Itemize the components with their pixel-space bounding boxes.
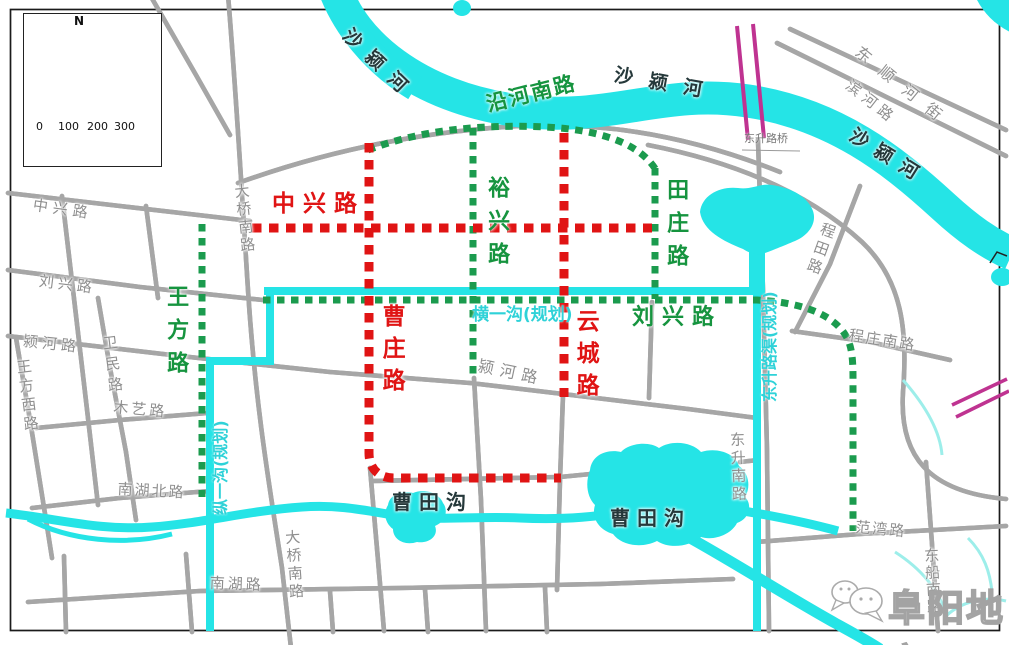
scale-tick-200: 200	[87, 120, 108, 133]
label-liuxing-road-planned: 刘兴路	[632, 306, 722, 329]
label-wangfang-road: 王方路	[164, 285, 187, 384]
label-tianzhuang-road: 田庄路	[664, 178, 687, 277]
label-dongsheng-canal: 东升路渠(规划)	[762, 291, 779, 402]
label-yuncheng-road: 云城路	[573, 309, 597, 405]
water-patch-top	[453, 0, 471, 16]
label-dongsheng-bridge: 东升路桥	[744, 133, 788, 145]
scale-tick-100: 100	[58, 120, 79, 133]
label-nanhu-road: 南湖路	[209, 576, 264, 594]
label-caotiangou-stream-2: 曹田沟	[610, 508, 691, 529]
north-label: N	[74, 14, 84, 28]
pond-caotiangou-big	[587, 443, 749, 546]
map-canvas: N 0 100 200 300 沙颍河 沙颍河 沙颍河 曹田沟 曹田沟 沿河南路…	[0, 0, 1009, 645]
label-yuxing-road: 裕兴路	[485, 176, 508, 275]
watermark-text: 阜阳地市	[888, 578, 1009, 645]
legend-box	[23, 13, 162, 167]
label-caozhuang-road: 曹庄路	[379, 304, 403, 400]
scale-tick-0: 0	[36, 120, 43, 133]
label-zhongxing-road-planned: 中兴路	[272, 192, 365, 216]
label-hengyigou-channel: 横一沟(规划)	[472, 307, 573, 325]
label-nanhubei-road: 南湖北路	[117, 482, 186, 501]
scale-tick-300: 300	[114, 120, 135, 133]
label-caotiangou-stream-1: 曹田沟	[392, 492, 473, 513]
label-zongyigou-channel: 纵一沟(规划)	[213, 420, 230, 515]
label-dongshengnan-road: 东升南路	[728, 431, 746, 504]
